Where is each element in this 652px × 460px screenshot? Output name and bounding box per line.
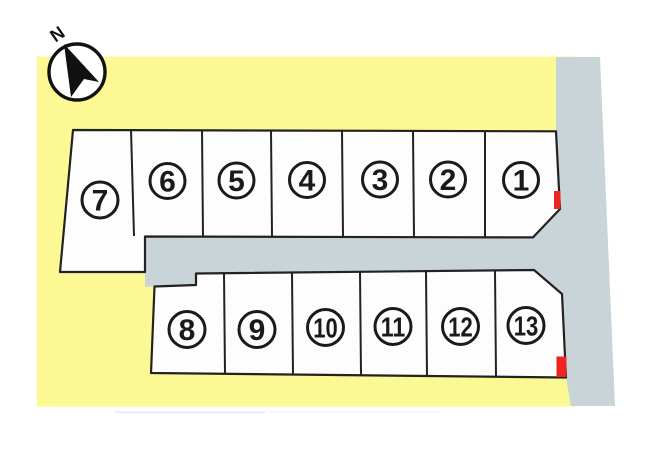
svg-text:3: 3 [372,164,389,197]
svg-text:11: 11 [381,312,406,343]
svg-text:5: 5 [228,165,245,198]
svg-text:10: 10 [313,313,338,344]
svg-text:4: 4 [299,164,316,197]
svg-text:2: 2 [440,164,457,197]
svg-text:13: 13 [514,311,539,342]
svg-text:7: 7 [92,184,109,217]
svg-text:9: 9 [249,314,266,347]
svg-text:8: 8 [179,314,196,347]
svg-text:6: 6 [159,165,176,198]
svg-text:12: 12 [448,312,473,343]
svg-text:1: 1 [513,164,530,197]
